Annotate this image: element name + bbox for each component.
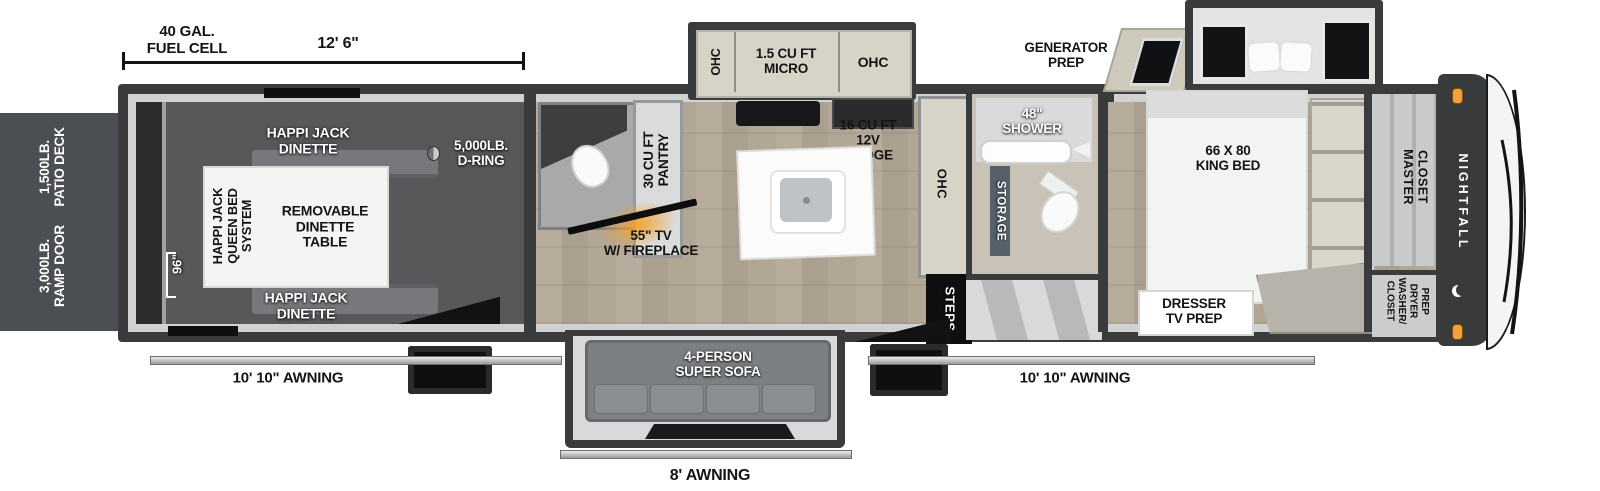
awning-bar-right xyxy=(868,356,1315,365)
ramp-interior xyxy=(136,102,162,324)
awning-rear-label: 8' AWNING xyxy=(670,467,751,485)
patio-deck-label: 1,500LB. PATIO DECK xyxy=(37,127,67,206)
wall-garage-kitchen xyxy=(524,94,536,332)
microwave-label: 1.5 CU FT MICRO xyxy=(756,46,816,76)
cabinet-divider-2 xyxy=(838,32,840,92)
generator-label: GENERATOR PREP xyxy=(1024,40,1107,70)
pillow-left xyxy=(1247,41,1281,73)
ohc-right-label: OHC xyxy=(858,55,889,71)
pantry-label: 30 CU FT PANTRY xyxy=(641,132,671,189)
dinette-top-label: HAPPI JACK DINETTE xyxy=(267,125,350,156)
dimension-tick-left xyxy=(122,52,125,70)
front-cap-blade xyxy=(1486,74,1526,350)
rv-floorplan: 40 GAL. FUEL CELL 12' 6" 1,500LB. PATIO … xyxy=(0,0,1600,491)
bed-system-label: HAPPI JACK QUEEN BED SYSTEM xyxy=(211,188,255,265)
width-bracket-tick-top xyxy=(166,252,176,254)
sofa-cushion-1 xyxy=(594,384,648,414)
entry-steps-right xyxy=(870,344,948,396)
brand-label: NIGHTFALL xyxy=(1456,153,1470,250)
tv-fireplace-label: 55" TV W/ FIREPLACE xyxy=(604,228,698,258)
king-bed-blanket xyxy=(1148,92,1306,118)
width-bracket xyxy=(166,252,168,298)
wall-bedroom-closet xyxy=(1364,94,1372,332)
cabinet-divider-1 xyxy=(734,32,736,92)
awning-right-label: 10' 10" AWNING xyxy=(1020,371,1131,388)
king-bed-label: 66 X 80 KING BED xyxy=(1196,143,1260,173)
sink-drain xyxy=(803,197,810,204)
garage-width-label: 96" xyxy=(171,254,186,274)
washer-dryer-label: CLOSET WASHER/ DRYER PREP xyxy=(1384,278,1430,325)
garage-window-bottom xyxy=(168,326,238,336)
length-label: 12' 6" xyxy=(317,35,358,53)
ohc-left-label: OHC xyxy=(709,48,723,75)
awning-left-label: 10' 10" AWNING xyxy=(233,371,344,388)
wardrobe-closet xyxy=(966,274,1102,340)
awning-bar-left xyxy=(150,356,562,365)
dimension-line xyxy=(122,61,525,64)
generator-window xyxy=(1129,38,1185,86)
bed-slide-window-right xyxy=(1322,20,1372,82)
wall-bath-bedroom xyxy=(1098,94,1108,332)
dinette-bottom-label: HAPPI JACK DINETTE xyxy=(265,290,348,321)
entry-steps-left xyxy=(408,346,492,394)
width-bracket-tick-bottom xyxy=(166,296,176,298)
fuel-cell-label: 40 GAL. FUEL CELL xyxy=(147,24,227,58)
master-closet-label: MASTER CLOSET xyxy=(1401,149,1430,205)
pillow-right xyxy=(1279,41,1313,73)
sofa-label: 4-PERSON SUPER SOFA xyxy=(675,349,760,379)
front-cap-swoosh-graphics xyxy=(1488,76,1524,348)
dimension-tick-right xyxy=(522,52,525,70)
garage-window-top xyxy=(264,88,360,98)
d-ring-icon xyxy=(427,146,440,161)
dresser-label: DRESSER TV PREP xyxy=(1162,296,1226,326)
bed-slide-window-left xyxy=(1200,24,1248,80)
marker-light-top xyxy=(1452,88,1463,104)
sofa-cushion-3 xyxy=(706,384,760,414)
sofa-cushion-2 xyxy=(650,384,704,414)
awning-bar-rear xyxy=(560,450,852,459)
ramp-door-label: 3,000LB. RAMP DOOR xyxy=(37,225,67,307)
marker-light-bottom xyxy=(1452,324,1463,340)
cooktop-range xyxy=(736,101,820,126)
storage-label: STORAGE xyxy=(993,181,1006,241)
dinette-table-label: REMOVABLE DINETTE TABLE xyxy=(282,203,369,250)
moon-icon xyxy=(1456,284,1468,296)
ohc-tall-label: OHC xyxy=(934,169,949,199)
d-ring-label: 5,000LB. D-RING xyxy=(454,138,508,168)
sofa-cushion-4 xyxy=(762,384,816,414)
king-bed xyxy=(1148,92,1306,302)
shower-pan xyxy=(980,140,1072,164)
sofa-slide-window xyxy=(645,424,795,439)
shower-label: 48" SHOWER xyxy=(1002,106,1062,136)
